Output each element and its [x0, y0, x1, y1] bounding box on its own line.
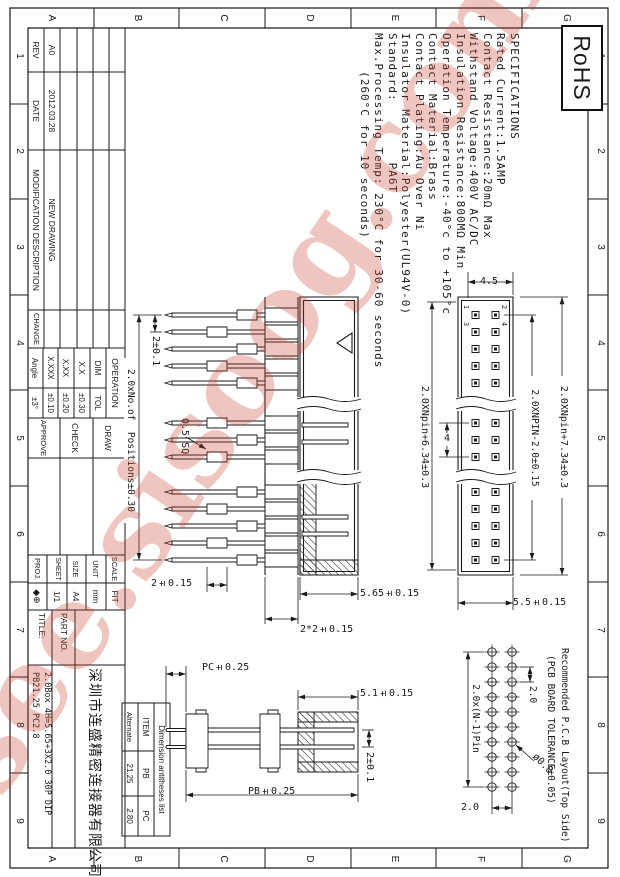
pin-number: 2	[500, 303, 508, 311]
title-label: TITLE:	[37, 613, 47, 639]
company-name: 深圳市连盛精密连接器有限公司	[85, 668, 105, 846]
draw-label: DRAW	[103, 418, 113, 458]
rev-header: REV	[31, 28, 41, 72]
tol-header: TOL	[93, 388, 102, 418]
rev-value: A0	[47, 28, 57, 72]
grid-number: 3	[595, 237, 606, 257]
dim-hole-pitch-top: 2.0	[526, 686, 537, 703]
dim-shroud-height: 5.65±0.15	[360, 588, 412, 601]
projection-symbol-icon: ◆⊕	[31, 583, 42, 610]
spec-line: Contact Plating:Au Over Ni	[412, 33, 426, 368]
dim-pin-square: 0.5 SQ	[179, 418, 191, 454]
grid-number: 8	[595, 715, 606, 735]
grid-number: 7	[595, 620, 606, 640]
grid-number: 2	[595, 141, 606, 161]
grid-number: 9	[595, 811, 606, 831]
dim-base-height: 2*2±0.15	[300, 624, 352, 637]
dim-pb: PB±0.25	[244, 786, 300, 799]
grid-letter: B	[132, 9, 143, 27]
sheet-label: SHEET	[54, 555, 61, 583]
operation-header: OPERATION	[110, 348, 120, 418]
size-label: SIZE	[71, 555, 80, 583]
modification-value: NEW DRAWING	[47, 150, 57, 310]
grid-letter: D	[304, 850, 315, 868]
dim-wall: 4.5	[466, 276, 512, 289]
pb-value: 21.25	[125, 751, 134, 796]
grid-number: 4	[595, 333, 606, 353]
tol-row-value: ±0.30	[77, 388, 86, 418]
grid-number: 7	[14, 620, 25, 640]
tol-row-value: ±3°	[30, 388, 39, 418]
grid-number: 6	[595, 524, 606, 544]
grid-number: 4	[14, 333, 25, 353]
approve-label: APPROVE	[39, 418, 48, 458]
specifications-block: SPECIFICATIONS Rated Current:1.5AMP Cont…	[358, 33, 521, 368]
unit-value: mm	[91, 583, 100, 610]
tol-row-label: X.X	[77, 348, 86, 388]
dim-pin-span: 2.0XNPIN-2.0±0.15	[528, 376, 539, 500]
grid-letter: F	[475, 850, 486, 868]
tol-row-label: Angle	[30, 348, 39, 388]
tol-row-label: X.XX	[61, 348, 70, 388]
datasheet-page: 1 2 3 4 5 6 7 8 9 1 2 3 4 5 6 7 8 9 G F …	[0, 0, 620, 877]
pc-value: 2.80	[125, 796, 134, 836]
spec-line: (260°C for 10 seconds)	[358, 33, 372, 368]
dim-pin-pitch: 2±0.1	[150, 336, 162, 366]
change-header: CHANGE	[32, 310, 41, 348]
antitheses-title: Dimension antitheses list	[157, 703, 166, 836]
spec-line: Max.Processing Temp: 230°C for 30-60 sec…	[371, 33, 385, 368]
pb-header: PB	[141, 751, 150, 796]
landscape-sheet: 1 2 3 4 5 6 7 8 9 1 2 3 4 5 6 7 8 9 G F …	[0, 0, 620, 877]
dim-height: 5.5±0.15	[513, 597, 565, 610]
grid-number: 5	[595, 428, 606, 448]
grid-number: 9	[14, 811, 25, 831]
dim-hole-span: 2.0x(N-1)Pin	[469, 666, 480, 771]
dim-section-pitch: 2±0.1	[364, 752, 376, 782]
pin-number: 1	[462, 303, 470, 311]
dim-total-length: 2.0XNpin+7.34±0.3	[558, 376, 570, 498]
part-title-line1: 2.0Box 4H=5.65+3X2.0 30P DIP	[41, 672, 51, 815]
dim-two-pitch: 4	[440, 433, 454, 446]
sheet-value: 1/1	[52, 583, 61, 610]
size-value: A4	[71, 583, 80, 610]
item-value: Alternate	[125, 703, 134, 751]
dim-header: DIM	[93, 348, 102, 388]
grid-number: 8	[14, 715, 25, 735]
pcb-title-line1: Recommended P.C.B Layout(Top Side)	[558, 648, 569, 842]
spec-line: Insulator Material:Polyester(UL94V-0)	[399, 33, 413, 368]
scale-value: FIT	[110, 583, 119, 610]
grid-number: 1	[14, 46, 25, 66]
projection-label: PROJ.	[33, 555, 42, 583]
tol-row-value: ±0.10	[46, 388, 55, 418]
grid-letter: A	[46, 9, 57, 27]
grid-letter: E	[389, 850, 400, 868]
grid-letter: F	[475, 9, 486, 27]
part-title-line2: PB21.25 PC2.8	[29, 672, 39, 739]
dim-section-depth: 5.1±0.15	[360, 688, 410, 701]
item-header: ITEM	[141, 703, 150, 751]
grid-number: 2	[14, 141, 25, 161]
grid-letter: A	[46, 850, 57, 868]
dim-row-height: 2±0.15	[148, 578, 196, 591]
grid-letter: B	[132, 850, 143, 868]
spec-line: Standard: PA6T	[385, 33, 399, 368]
pcb-title-line2: (PCB BOARD TOLERANCE±0.05)	[544, 655, 555, 804]
date-value: 2012.03.28	[47, 72, 57, 150]
grid-letter: C	[218, 9, 229, 27]
grid-number: 6	[14, 524, 25, 544]
grid-letter: D	[304, 9, 315, 27]
grid-letter: E	[389, 9, 400, 27]
grid-letter: C	[218, 850, 229, 868]
spec-line: Operation Temperature:-40°c to +105°c	[439, 33, 453, 368]
dim-positions: 2.0xNo.of Positions±0.30	[124, 358, 135, 523]
spec-line: SPECIFICATIONS	[507, 33, 521, 368]
tol-row-label: X.XXX	[46, 348, 55, 388]
part-no-label: PART NO.	[59, 613, 69, 652]
pc-header: PC	[141, 796, 150, 836]
dim-inner-length: 2.0XNpin+6.34±0.3	[419, 377, 431, 497]
spec-line: Rated Current:1.5AMP	[494, 33, 508, 368]
spec-line: Contact Resistance:20mΩ Max	[480, 33, 494, 368]
grid-letter: G	[561, 850, 572, 868]
spec-line: Insulation Resistance:800MΩ Min	[453, 33, 467, 368]
date-header: DATE	[31, 72, 41, 150]
unit-label: UNIT	[91, 555, 100, 583]
grid-number: 5	[14, 428, 25, 448]
pin-number: 4	[500, 320, 508, 328]
pin-number: 3	[462, 320, 470, 328]
modification-header: MODIFICATION DESCRIPTION	[31, 150, 41, 310]
spec-line: Withstand Voltage:400V AC/DC	[467, 33, 481, 368]
tol-row-value: ±0.20	[61, 388, 70, 418]
check-label: CHECK	[70, 418, 80, 458]
grid-number: 3	[14, 237, 25, 257]
dim-pc: PC±0.25	[200, 662, 252, 675]
dim-hole-pitch-right: 2.0	[458, 802, 482, 815]
scale-label: SCALE	[110, 555, 119, 583]
rohs-badge: RoHS	[561, 25, 603, 111]
spec-line: Contact Material:Brass	[426, 33, 440, 368]
